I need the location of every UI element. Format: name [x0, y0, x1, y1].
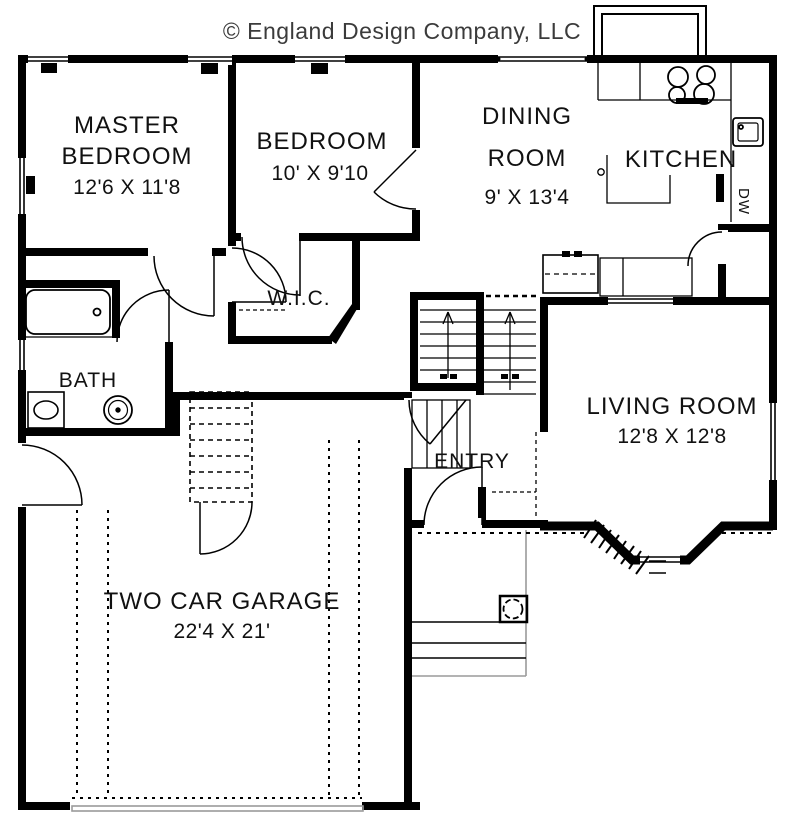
dishwasher-label: DW — [735, 188, 752, 215]
copyright-title: © England Design Company, LLC — [223, 18, 581, 45]
toilet — [104, 396, 132, 424]
bedroom-dimensions: 10' X 9'10 — [271, 162, 368, 186]
dishwasher — [716, 174, 724, 202]
wic-angled-wall — [328, 304, 360, 344]
floor-plan: © England Design Company, LLC MASTER BED… — [0, 0, 800, 829]
entry-label: ENTRY — [434, 450, 510, 474]
wic-label: W.I.C. — [267, 287, 330, 311]
kitchen-sink — [733, 118, 763, 146]
bathtub — [18, 290, 113, 337]
bath-label: BATH — [59, 369, 117, 393]
kitchen-island — [543, 251, 598, 293]
master-bedroom-label-line1: MASTER — [74, 112, 180, 140]
garage-tracks-dashed — [72, 440, 362, 798]
kitchen-counters — [598, 63, 731, 296]
master-bedroom-dimensions: 12'6 X 11'8 — [73, 176, 181, 200]
bath-sink — [28, 392, 64, 428]
living-room-dimensions: 12'8 X 12'8 — [617, 425, 726, 449]
porch-post — [500, 596, 527, 622]
living-room-label: LIVING ROOM — [586, 393, 757, 421]
wall-openings — [16, 148, 728, 812]
dining-room-label-line1: DINING — [482, 103, 572, 131]
range-cooktop — [668, 66, 715, 104]
garage-dimensions: 22'4 X 21' — [173, 620, 270, 644]
deck-outline — [594, 6, 706, 58]
master-bedroom-label-line2: BEDROOM — [61, 143, 192, 171]
porch-steps — [412, 530, 526, 676]
dining-room-label-line2: ROOM — [488, 145, 567, 173]
dining-room-dimensions: 9' X 13'4 — [485, 186, 570, 210]
kitchen-label: KITCHEN — [625, 146, 737, 174]
garage-label: TWO CAR GARAGE — [104, 588, 341, 616]
basement-stairs-dashed — [190, 392, 252, 502]
door-swings — [22, 150, 722, 554]
bedroom-label: BEDROOM — [256, 128, 387, 156]
